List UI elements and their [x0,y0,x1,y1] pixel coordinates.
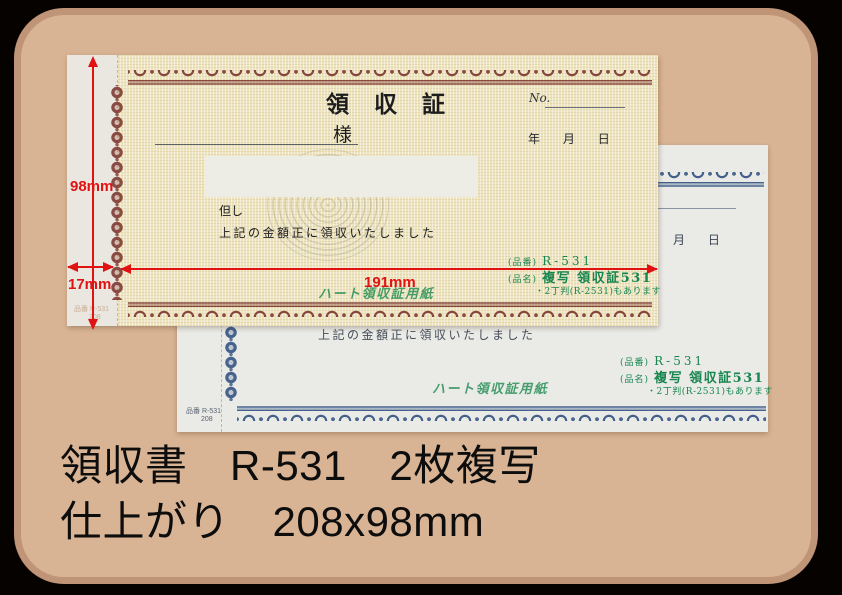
receipt-day-label: 日 [598,130,610,147]
copy-day-label: 日 [708,231,720,248]
copy-product-code: R-531 [654,354,705,368]
receipt-number-line [545,107,625,108]
receipt-received-statement: 上記の金額正に領収いたしました [219,224,437,241]
body-width-dimension-label: 191mm [364,274,416,291]
stub-width-dimension-arrow [68,266,113,268]
copy-stub-size-line: 208 [186,416,221,424]
receipt-proviso: 但し [219,202,243,219]
receipt-sheet: 領収証 No. 様 年 月 日 但し 上記の金額正に領収いたしました (品番) … [67,55,658,326]
caption-line-1: 領収書 R-531 2枚複写 [60,438,541,494]
product-image: 月 日 上記の金額正に領収いたしました (品番) R-531 (品名) 複写 領… [0,0,842,595]
body-width-dimension-arrow [121,268,657,270]
copy-brand-logo: ハート領収証用紙 [432,378,548,397]
receipt-product-code-label: (品番) [508,258,537,268]
copy-product-name-label: (品名) [620,375,649,385]
copy-product-name: 複写 領収証531 [654,371,764,386]
height-dimension-label: 98mm [70,178,113,195]
receipt-product-name: 複写 領収証531 [542,271,652,286]
caption-line-2: 仕上がり 208x98mm [60,494,541,550]
receipt-year-label: 年 [528,130,540,147]
receipt-date-row: 年 月 日 [528,130,629,147]
receipt-product-code: R-531 [542,254,593,268]
copy-stub-code-line: 品番 R-531 [186,408,221,416]
copy-stub-code: 品番 R-531 208 [186,408,221,424]
copy-product-name-row: (品名) 複写 領収証531 [620,370,773,387]
receipt-title: 領収証 [326,85,470,119]
copy-product-info: (品番) R-531 (品名) 複写 領収証531 ・2丁判(R-2531)もあ… [620,353,773,398]
receipt-payer-name-line [155,144,358,145]
copy-received-statement: 上記の金額正に領収いたしました [318,326,536,343]
copy-number-line [657,208,736,209]
receipt-product-info: (品番) R-531 (品名) 複写 領収証531 ・2丁判(R-2531)もあ… [508,253,661,298]
caption: 領収書 R-531 2枚複写 仕上がり 208x98mm [60,438,541,550]
copy-product-note: ・2丁判(R-2531)もあります [620,387,773,398]
receipt-month-label: 月 [563,130,575,147]
copy-product-code-label: (品番) [620,358,649,368]
copy-bottom-ornament-border [237,404,766,421]
stub-width-dimension-label: 17mm [68,276,111,293]
copy-product-code-row: (品番) R-531 [620,353,773,370]
receipt-product-note: ・2丁判(R-2531)もあります [508,287,661,298]
receipt-number-label: No. [529,91,550,105]
receipt-honorific: 様 [333,120,352,147]
copy-month-label: 月 [673,231,685,248]
copy-date-row: 月 日 [673,231,739,248]
receipt-bottom-ornament-border [128,300,652,317]
amount-blank-area [205,156,478,197]
receipt-product-name-row: (品名) 複写 領収証531 [508,270,661,287]
receipt-product-name-label: (品名) [508,275,537,285]
